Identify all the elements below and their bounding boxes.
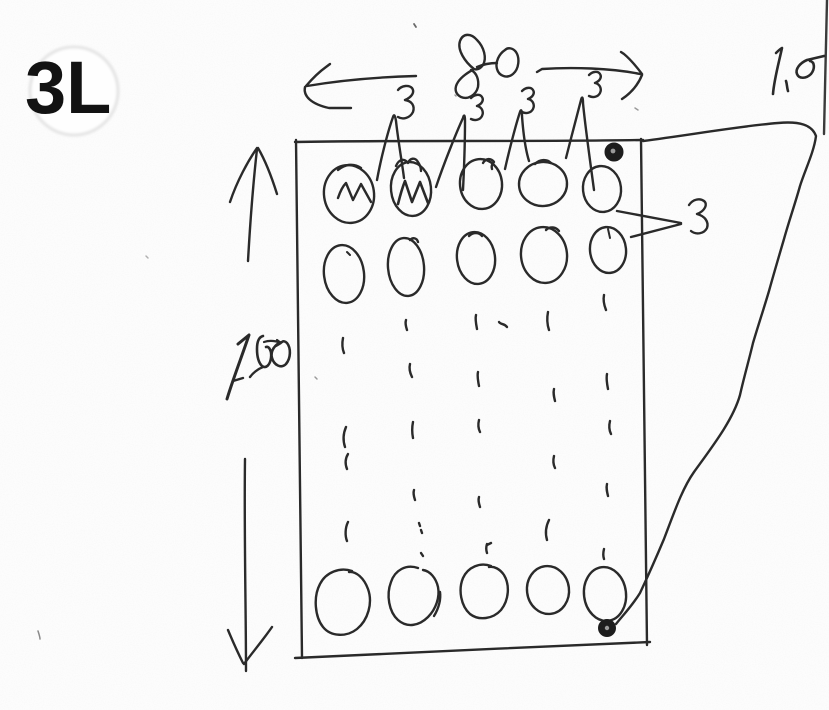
svg-text:3L: 3L: [25, 46, 111, 129]
